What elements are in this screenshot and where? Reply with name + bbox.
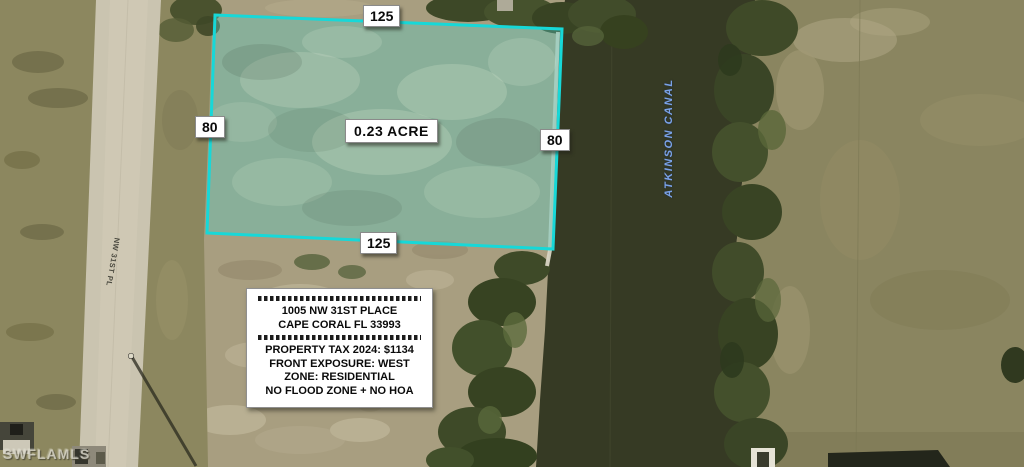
aerial-listing-image: 125 80 0.23 ACRE 80 125 ATKINSON CANAL N… [0,0,1024,467]
flood-hoa-line: NO FLOOD ZONE + NO HOA [251,385,428,399]
property-tax-line: PROPERTY TAX 2024: $1134 [251,344,428,358]
canal-name-label: ATKINSON CANAL [663,78,675,197]
zone-line: ZONE: RESIDENTIAL [251,371,428,385]
info-separator-middle [258,335,421,340]
lot-dimension-top: 125 [363,5,400,27]
address-line-2: CAPE CORAL FL 33993 [251,319,428,333]
lot-dimension-left: 80 [195,116,225,138]
satellite-imagery [0,0,1024,467]
address-line-1: 1005 NW 31ST PLACE [251,305,428,319]
lot-dimension-right: 80 [540,129,570,151]
front-exposure-line: FRONT EXPOSURE: WEST [251,358,428,372]
lot-dimension-bottom: 125 [360,232,397,254]
mls-watermark: SWFLAMLS [3,446,90,462]
lot-area-label: 0.23 ACRE [345,119,438,143]
property-info-box: 1005 NW 31ST PLACE CAPE CORAL FL 33993 P… [246,288,433,408]
info-separator-top [258,296,421,301]
